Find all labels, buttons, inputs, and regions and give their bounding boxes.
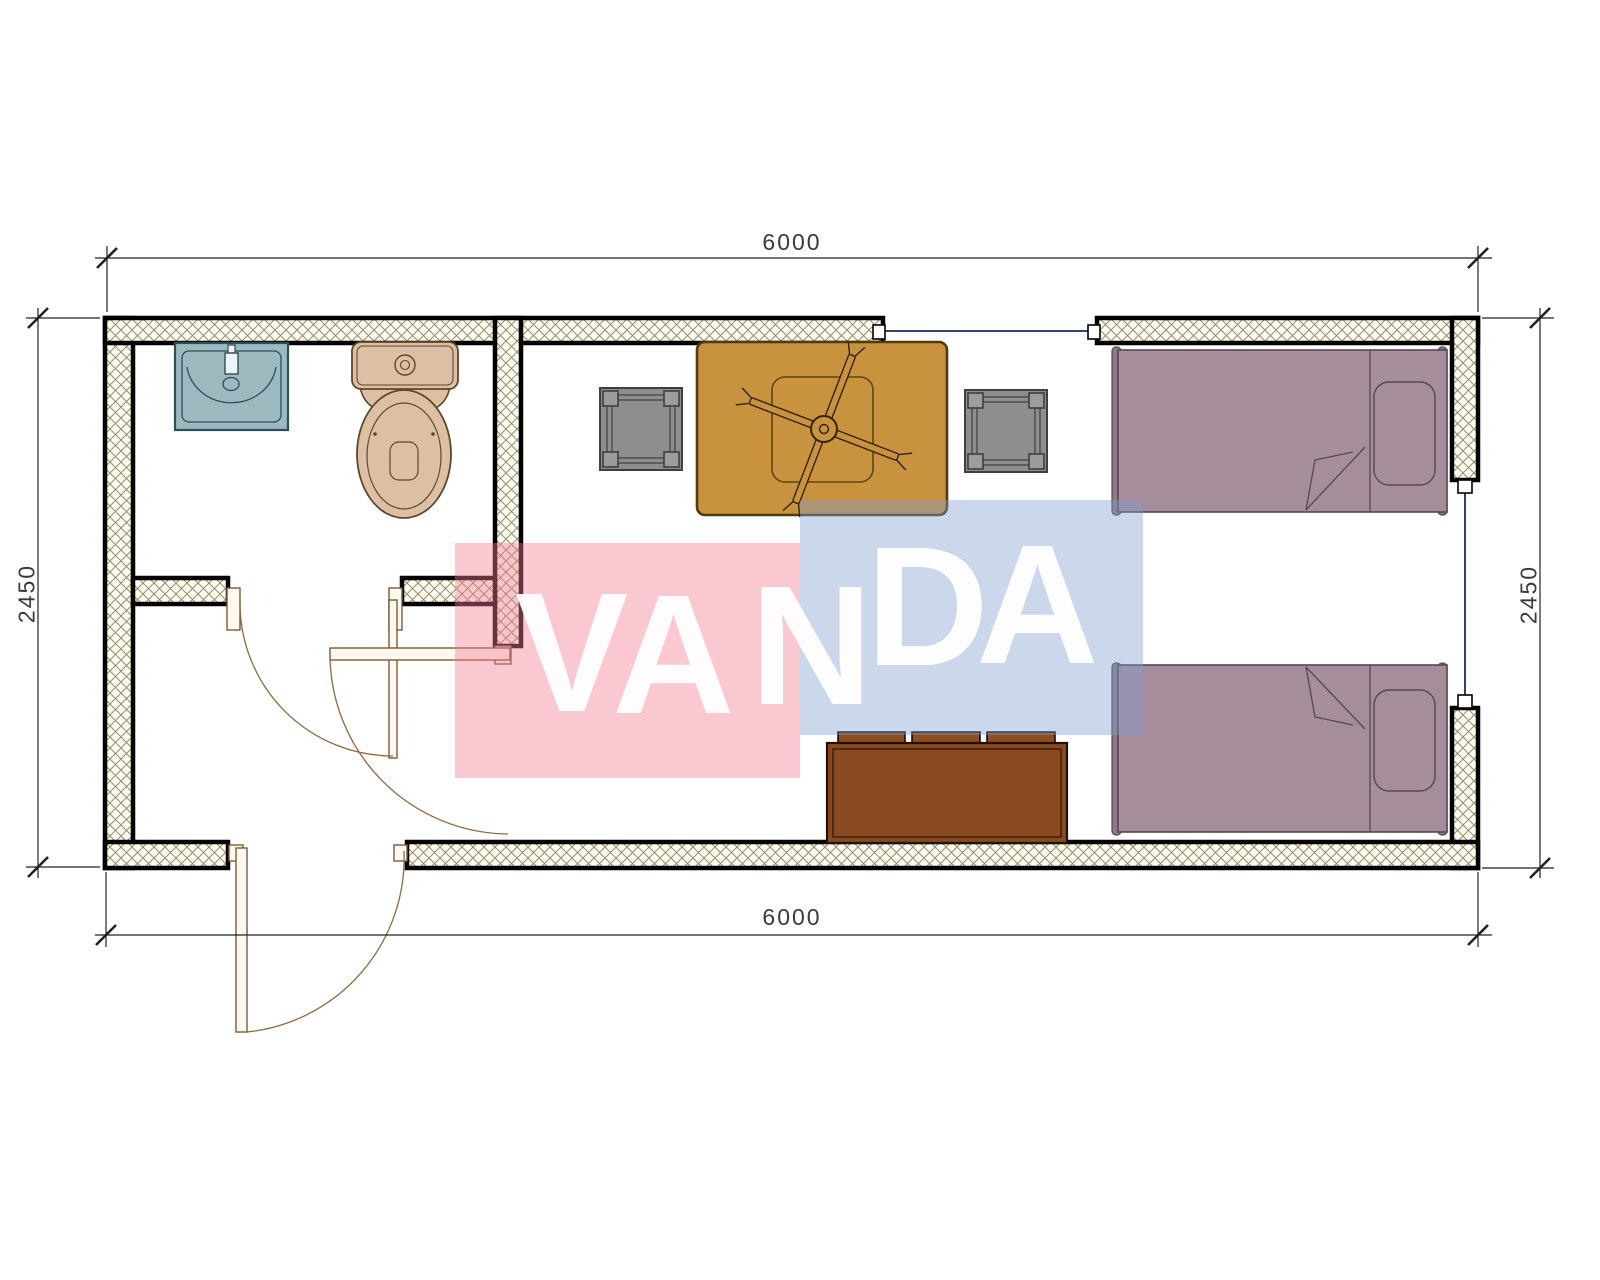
- entrance-door: [229, 845, 407, 1032]
- floor-plan-canvas: VANDA 6000 6000 2450 2450: [0, 0, 1600, 1280]
- bathroom-door: [227, 588, 402, 758]
- dimension-label-left: 2450: [14, 544, 41, 644]
- stool-right-symbol: [965, 390, 1047, 472]
- wall-right-upper: [1452, 318, 1478, 480]
- window-top: [873, 325, 1100, 339]
- watermark-pink-block: [455, 543, 800, 778]
- toilet-symbol: [352, 342, 458, 518]
- wall-left: [105, 318, 133, 868]
- bed-top-symbol: [1112, 347, 1447, 515]
- bed-bottom-symbol: [1112, 663, 1447, 835]
- wall-bottom-left: [105, 842, 228, 868]
- wall-bottom-right: [407, 842, 1478, 868]
- sink-symbol: [175, 343, 288, 430]
- bench-sofa-symbol: [827, 732, 1067, 843]
- wall-top-right: [1097, 318, 1478, 343]
- window-right: [1458, 480, 1472, 708]
- dimension-label-bottom: 6000: [742, 904, 842, 931]
- dimension-label-right: 2450: [1516, 545, 1543, 645]
- wall-bathroom-stub-left: [133, 578, 228, 604]
- dimension-label-top: 6000: [742, 229, 842, 256]
- stool-left-symbol: [600, 388, 682, 470]
- watermark-blue-block: [800, 500, 1143, 735]
